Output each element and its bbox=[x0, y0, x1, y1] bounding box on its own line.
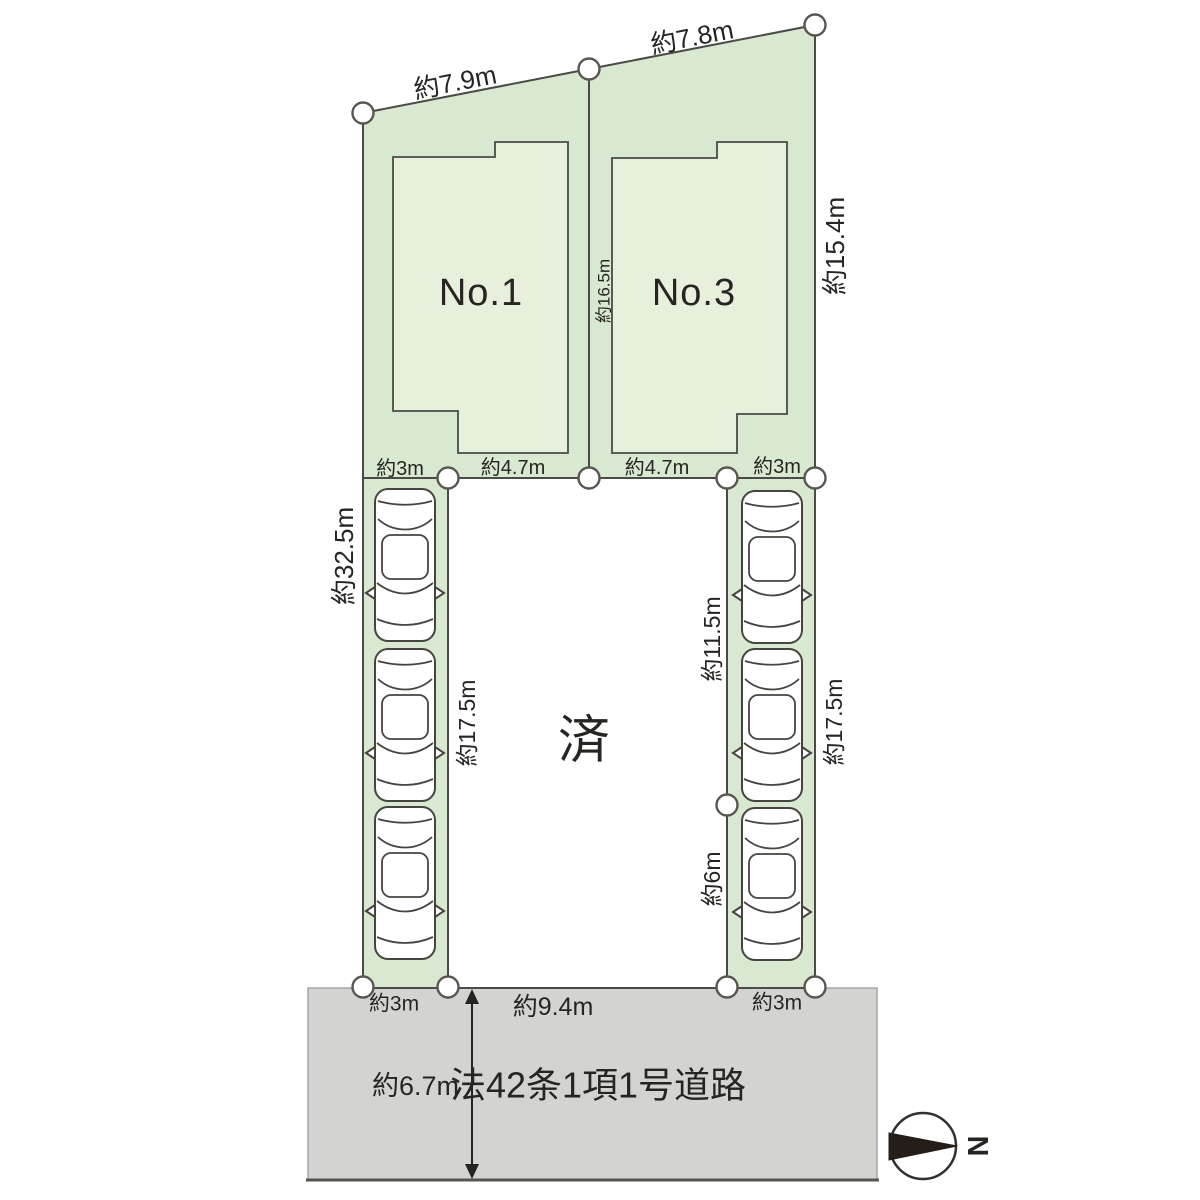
dim-right-strip-outer: 約17.5m bbox=[821, 679, 847, 766]
car-icon bbox=[366, 807, 444, 959]
vertex-marker bbox=[438, 468, 459, 489]
dim-plot1-front-right: 約4.7m bbox=[481, 456, 545, 479]
dim-right-strip-bottom: 約3m bbox=[752, 992, 802, 1015]
car-icon bbox=[733, 491, 811, 643]
dim-left-edge: 約32.5m bbox=[329, 507, 359, 605]
car-icon bbox=[366, 649, 444, 801]
vertex-marker bbox=[579, 59, 600, 80]
dim-center-divider: 約16.5m bbox=[595, 259, 614, 323]
dim-left-strip-bottom: 約3m bbox=[369, 993, 419, 1016]
compass: N bbox=[889, 1113, 993, 1179]
lot-layout-diagram: No.1 No.3 済 約7.9m 約7.8m 約32.5m 約16.5m 約1… bbox=[0, 0, 1200, 1200]
road-name-label: 法42条1項1号道路 bbox=[450, 1065, 746, 1106]
vertex-marker bbox=[805, 15, 826, 36]
vertex-marker bbox=[717, 468, 738, 489]
dim-left-strip-inner: 約17.5m bbox=[454, 680, 480, 767]
dim-center-bottom: 約9.4m bbox=[513, 993, 594, 1021]
sold-status-label: 済 bbox=[558, 712, 610, 770]
dim-plot3-front-left: 約4.7m bbox=[625, 456, 689, 479]
dim-road-width: 約6.7m bbox=[372, 1071, 459, 1101]
dim-plot1-front-left: 約3m bbox=[376, 457, 424, 480]
vertex-marker bbox=[353, 103, 374, 124]
dim-right-strip-inner-upper: 約11.5m bbox=[699, 596, 725, 681]
car-icon bbox=[733, 649, 811, 801]
dim-right-edge-upper: 約15.4m bbox=[820, 197, 850, 295]
compass-north-label: N bbox=[961, 1136, 993, 1157]
plot-no3-label: No.3 bbox=[652, 272, 736, 314]
vertex-marker bbox=[805, 468, 826, 489]
vertex-marker bbox=[438, 977, 459, 998]
site-plan-svg: No.1 No.3 済 約7.9m 約7.8m 約32.5m 約16.5m 約1… bbox=[0, 0, 1200, 1200]
vertex-marker bbox=[717, 795, 738, 816]
vertex-marker bbox=[717, 977, 738, 998]
car-icon bbox=[733, 808, 811, 960]
vertex-marker bbox=[805, 977, 826, 998]
car-icon bbox=[366, 489, 444, 641]
plot-no1-label: No.1 bbox=[439, 272, 523, 314]
dim-plot3-front-right: 約3m bbox=[753, 455, 801, 478]
vertex-marker bbox=[579, 468, 600, 489]
dim-right-strip-inner-lower: 約6m bbox=[699, 852, 725, 907]
